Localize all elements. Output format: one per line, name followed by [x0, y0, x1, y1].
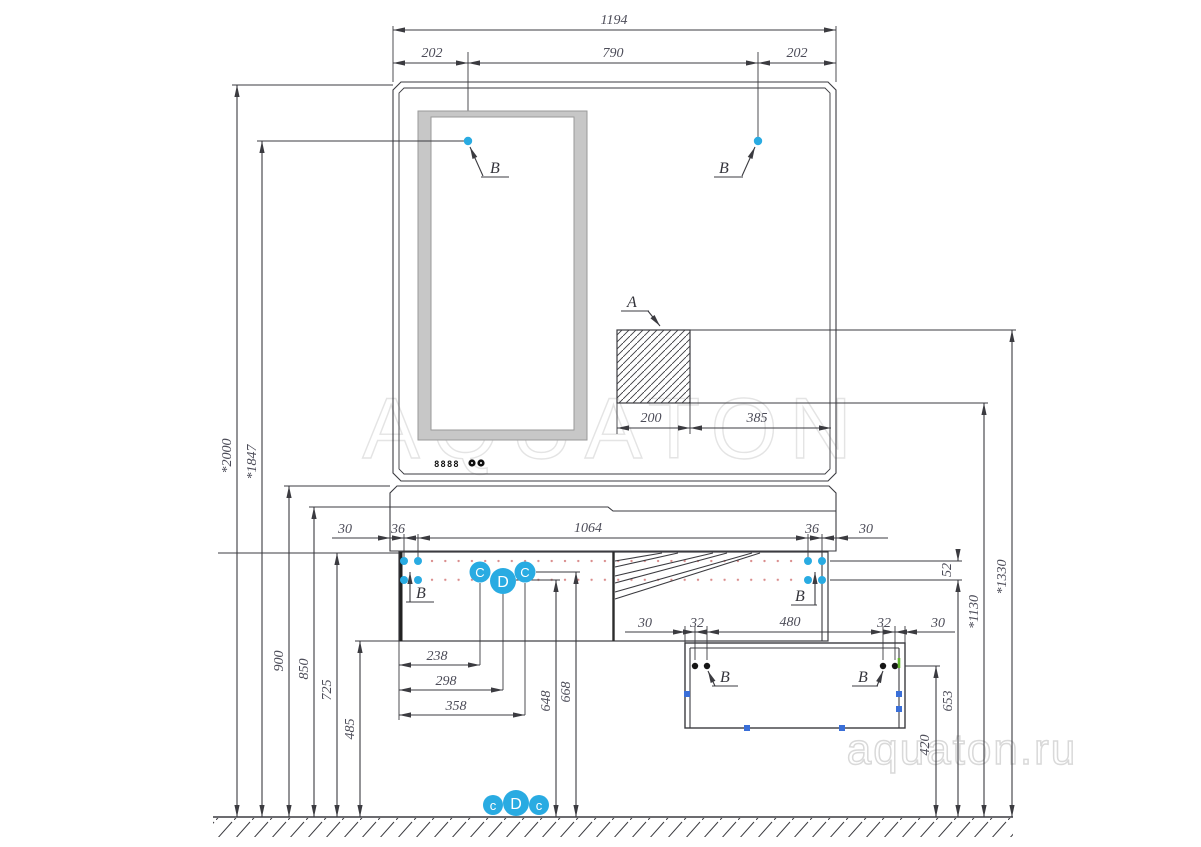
dim-top-right: 202 [787, 46, 808, 61]
fixing-marker [839, 725, 845, 731]
dim-low-span: 480 [780, 615, 801, 630]
dim-cab-30-right: 30 [858, 522, 873, 537]
washbasin-cabinet [399, 552, 828, 641]
bubble-c-label: C [475, 565, 484, 580]
mixer-outlet-hatch [617, 330, 690, 403]
mount-point-marker [754, 137, 762, 145]
mirror [418, 111, 587, 440]
bubble-c-label: c [490, 798, 497, 813]
watermark-site: aquaton.ru [847, 725, 1077, 774]
dim-h850: 850 [297, 659, 312, 680]
dim-w238: 238 [427, 649, 448, 664]
dim-h668: 668 [559, 682, 574, 703]
dim-w298: 298 [436, 674, 457, 689]
mount-point-marker [464, 137, 472, 145]
dim-low-30-right: 30 [930, 616, 945, 631]
dim-top-total: 1194 [601, 13, 628, 28]
dim-h648: 648 [539, 691, 554, 712]
bubble-d-label: D [510, 796, 522, 813]
dim-h653: 653 [941, 691, 956, 712]
dim-low-32-right: 32 [876, 616, 891, 631]
dim-h485: 485 [343, 719, 358, 740]
dim-h1847: *1847 [245, 444, 260, 480]
dim-top-left: 202 [422, 46, 443, 61]
detail-b-label: B [858, 669, 868, 686]
countertop [390, 486, 836, 551]
detail-b-label: B [719, 160, 729, 177]
detail-b-label: B [490, 160, 500, 177]
detail-b-label: B [416, 585, 426, 602]
dim-h2000: *2000 [220, 439, 235, 474]
dim-cab-span: 1064 [574, 521, 602, 536]
dim-low-32-left: 32 [689, 616, 704, 631]
dim-mixer-width: 200 [641, 411, 662, 426]
watermark-site-text: aquaton.ru [847, 725, 1077, 774]
dim-h1130: *1130 [967, 595, 982, 629]
dim-cab-36-left: 36 [390, 522, 405, 537]
bubble-d-label: D [497, 574, 509, 591]
floor [213, 817, 1013, 837]
bubble-c-label: c [536, 798, 543, 813]
detail-b-label: B [720, 669, 730, 686]
fixing-marker [744, 725, 750, 731]
fixing-marker [896, 691, 902, 697]
drawer-unit: B B [684, 643, 905, 731]
mirror-button-dot-icon [480, 462, 482, 464]
dim-low-30-left: 30 [637, 616, 652, 631]
fixing-marker [684, 691, 690, 697]
dim-cab-30-left: 30 [337, 522, 352, 537]
floor-hatch [213, 818, 1013, 837]
panel-mount-right: B [714, 137, 762, 177]
dim-cab-36-right: 36 [804, 522, 819, 537]
drawing-canvas: AQUATON aquaton.ru 1194 202 790 202 8888 [0, 0, 1201, 847]
dim-h900: 900 [272, 651, 287, 672]
dim-w358: 358 [445, 699, 467, 714]
dim-h1330: *1330 [995, 560, 1010, 595]
dim-h725: 725 [320, 680, 335, 701]
dim-mixer-offset: 385 [746, 411, 768, 426]
fixing-marker [896, 706, 902, 712]
dim-h52: 52 [940, 563, 955, 577]
dim-h420: 420 [918, 735, 933, 756]
callout-bubbles-bottom: c D c [483, 790, 549, 816]
clock-digits: 8888 [434, 460, 460, 470]
installation-drawing: AQUATON aquaton.ru 1194 202 790 202 8888 [0, 0, 1201, 847]
detail-b-label: B [795, 588, 805, 605]
mirror-button-dot-icon [471, 462, 473, 464]
bubble-c-label: C [520, 565, 529, 580]
dim-top-center: 790 [603, 46, 624, 61]
detail-a-label: A [626, 294, 637, 311]
